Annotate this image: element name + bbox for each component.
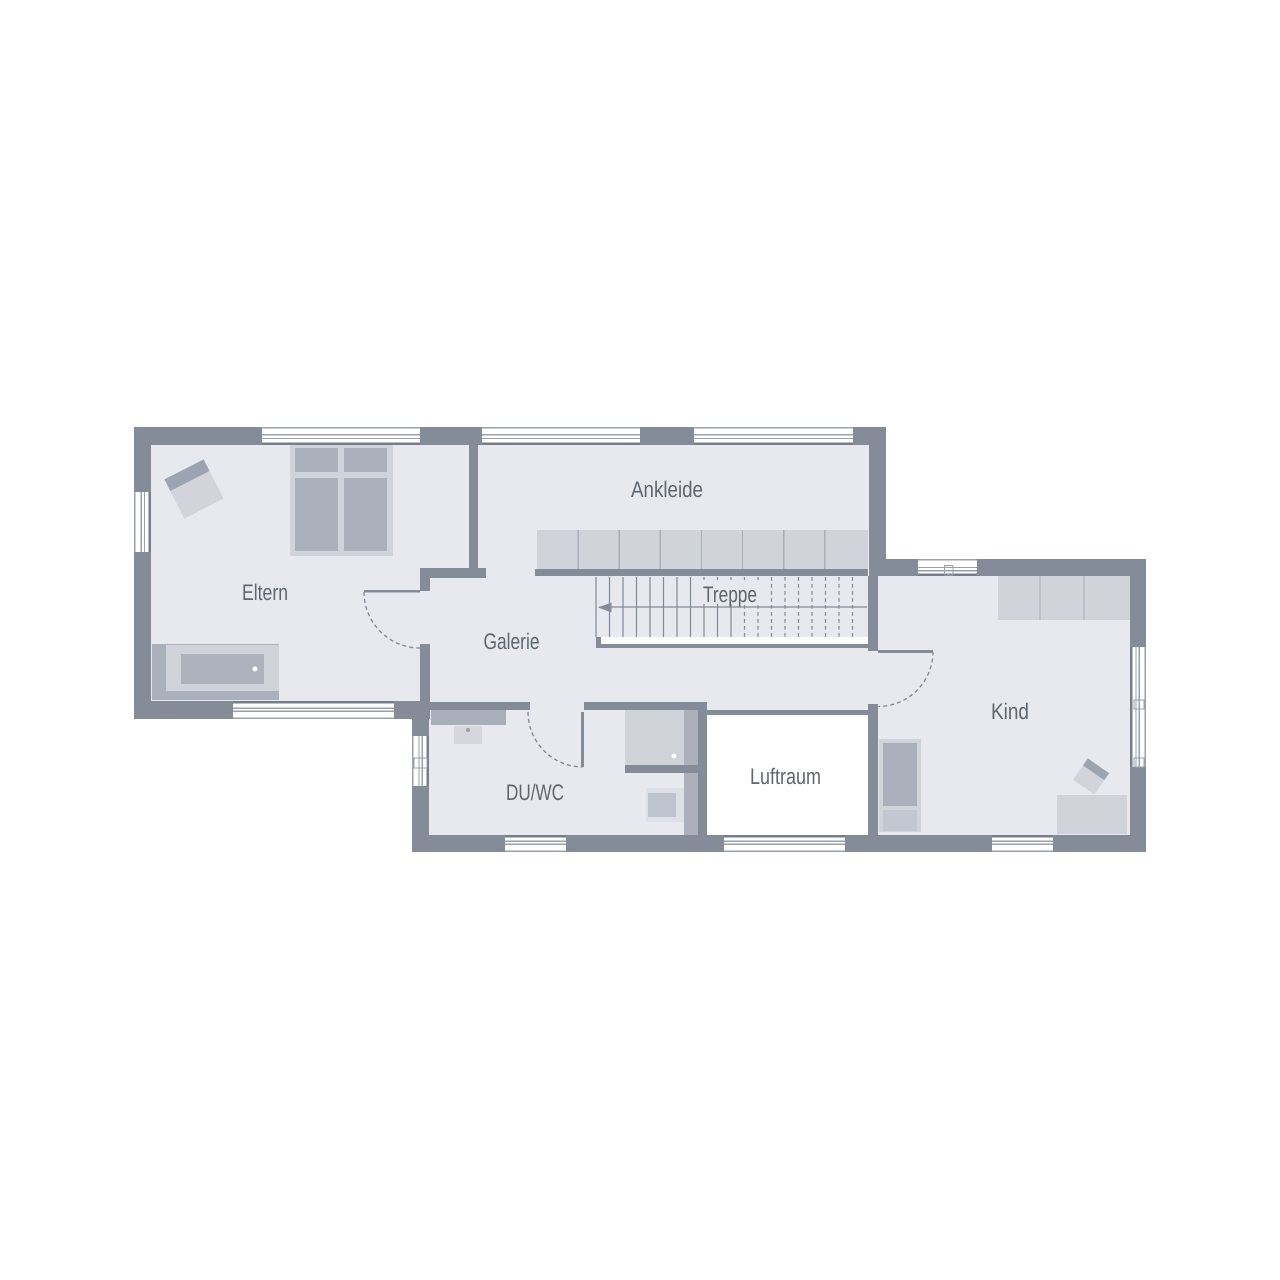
svg-text:Treppe: Treppe <box>703 582 757 607</box>
svg-text:DU/WC: DU/WC <box>506 780 564 805</box>
svg-text:Ankleide: Ankleide <box>631 477 703 502</box>
svg-text:Galerie: Galerie <box>484 629 540 654</box>
svg-text:Luftraum: Luftraum <box>750 764 821 789</box>
svg-text:Kind: Kind <box>991 699 1029 724</box>
svg-text:Eltern: Eltern <box>242 580 288 605</box>
